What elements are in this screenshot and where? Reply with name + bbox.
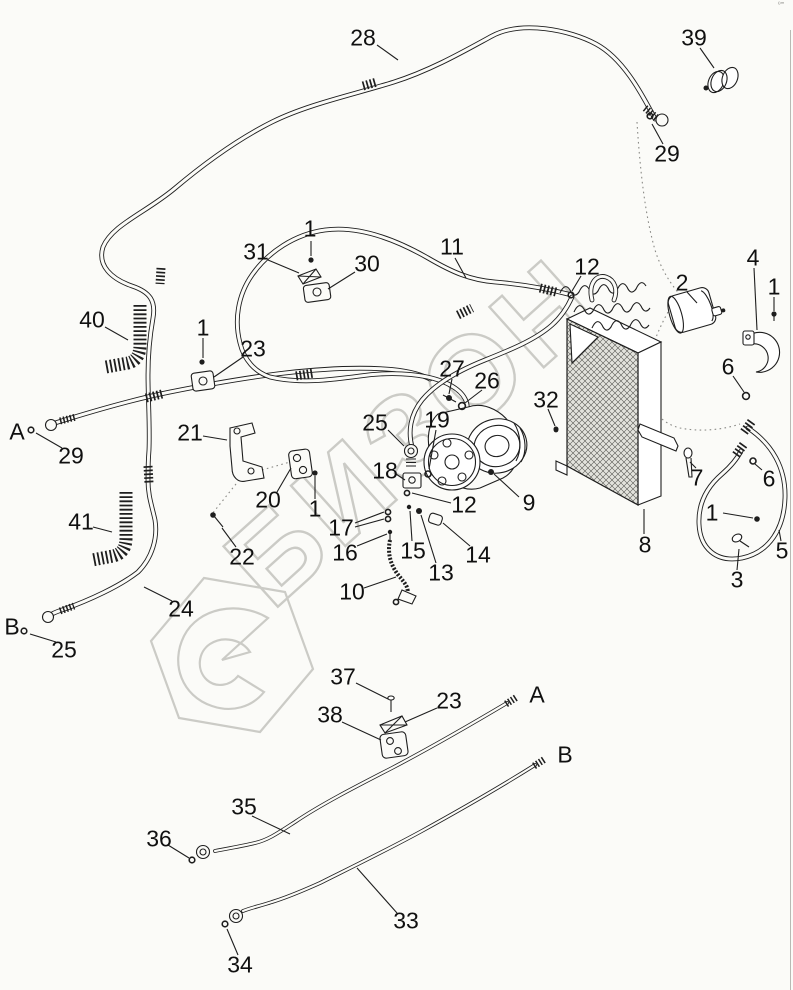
- callout-26: 26: [474, 370, 500, 393]
- callout-4: 4: [747, 247, 760, 270]
- callout-25b: 25: [51, 639, 77, 662]
- callout-3: 3: [731, 569, 744, 592]
- callout-12b: 12: [451, 494, 477, 517]
- callout-5: 5: [776, 540, 789, 563]
- callout-15: 15: [400, 540, 426, 563]
- callout-9: 9: [523, 492, 536, 515]
- callout-29-left: 29: [58, 445, 84, 468]
- callout-39: 39: [681, 27, 707, 50]
- callout-11: 11: [440, 236, 464, 259]
- tube-33: [222, 759, 545, 927]
- callout-10: 10: [339, 581, 365, 604]
- coil-41: [92, 492, 126, 560]
- callout-36: 36: [146, 828, 172, 851]
- callout-18: 18: [372, 460, 398, 483]
- callout-38: 38: [317, 704, 343, 727]
- callout-12a: 12: [574, 256, 600, 279]
- callout-17: 17: [328, 517, 354, 540]
- page-corner-mark: º‴: [778, 2, 785, 9]
- callout-1d: 1: [309, 498, 322, 521]
- callout-19: 19: [424, 409, 450, 432]
- callout-27: 27: [439, 358, 465, 381]
- coil-40: [106, 305, 140, 367]
- callout-33: 33: [393, 910, 419, 933]
- callout-1c: 1: [197, 317, 210, 340]
- callout-41: 41: [68, 511, 94, 534]
- callout-28: 28: [350, 27, 376, 50]
- receiver-drier-2: [665, 283, 728, 335]
- clamp-30: [298, 257, 331, 302]
- callout-2: 2: [676, 272, 689, 295]
- callout-34: 34: [227, 954, 253, 977]
- page-right-border: [790, 30, 791, 990]
- callout-1e: 1: [706, 502, 719, 525]
- callout-13: 13: [428, 562, 454, 585]
- callout-1a: 1: [304, 218, 317, 241]
- callout-29-top: 29: [654, 143, 680, 166]
- callout-20: 20: [255, 489, 281, 512]
- tube-35: [189, 697, 517, 863]
- callout-14: 14: [465, 544, 491, 567]
- clamp-23-left: [191, 359, 215, 391]
- callout-6b: 6: [763, 468, 776, 491]
- bracket-21: [230, 423, 264, 481]
- callout-7: 7: [691, 467, 704, 490]
- parts-diagram-page: БИЗОН: [0, 0, 793, 990]
- callout-port-a: A: [9, 421, 24, 444]
- callout-6a: 6: [722, 356, 735, 379]
- callout-40: 40: [79, 309, 105, 332]
- clamp-39: [704, 65, 742, 95]
- callout-32: 32: [533, 389, 559, 412]
- callout-25a: 25: [362, 412, 388, 435]
- callout-port-b: B: [4, 616, 19, 639]
- callout-37: 37: [330, 666, 356, 689]
- callout-21: 21: [177, 422, 203, 445]
- callout-8: 8: [639, 534, 652, 557]
- callout-31: 31: [243, 241, 269, 264]
- callout-port-a2: A: [529, 684, 544, 707]
- callout-16: 16: [332, 542, 358, 565]
- callout-24: 24: [168, 598, 194, 621]
- callout-23b: 23: [436, 690, 462, 713]
- callout-22: 22: [229, 546, 255, 569]
- callout-35: 35: [231, 796, 257, 819]
- callout-23a: 23: [240, 338, 266, 361]
- bracket-4: [743, 311, 780, 372]
- callout-1b: 1: [768, 276, 781, 299]
- callout-30: 30: [354, 253, 380, 276]
- callout-port-b2: B: [557, 744, 572, 767]
- clamp-38: [379, 696, 408, 759]
